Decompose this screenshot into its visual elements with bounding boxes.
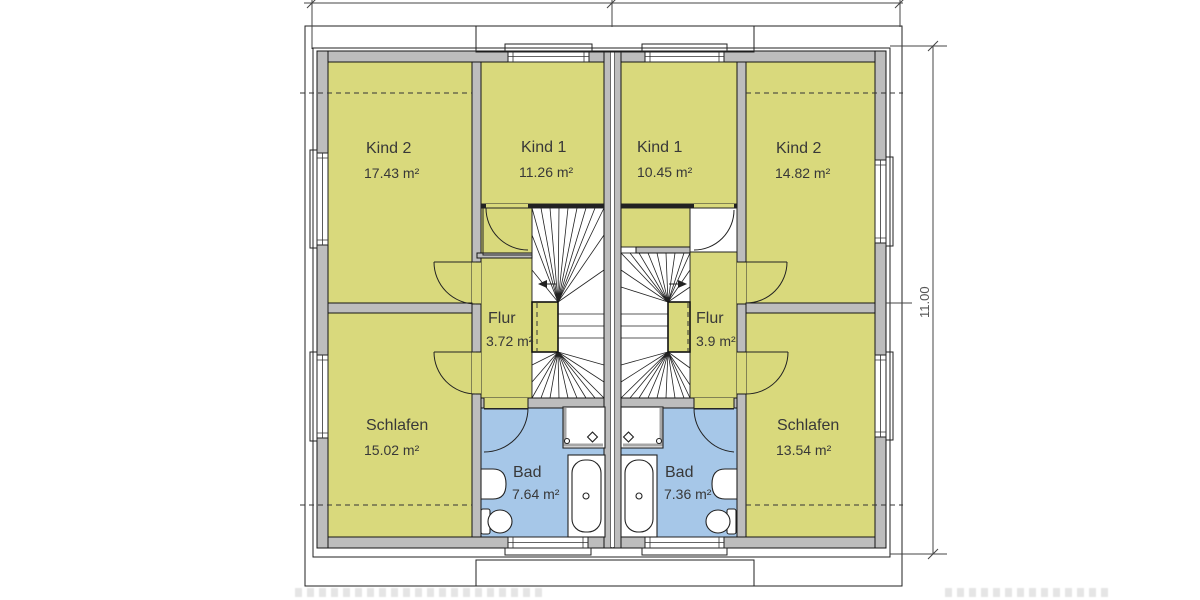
- toilet-icon: [706, 510, 730, 533]
- interior-wall: [481, 398, 484, 408]
- party-wall-gap: [611, 52, 614, 547]
- window-sill: [642, 548, 727, 555]
- room-name: Bad: [513, 464, 541, 481]
- partition-wall: [734, 204, 737, 208]
- room-name: Bad: [665, 464, 693, 481]
- shower-valve-icon: [657, 439, 662, 444]
- room-area: 17.43 m²: [364, 165, 420, 181]
- faint-artifact-right: [945, 588, 1110, 597]
- room-kind1-right: [621, 62, 737, 204]
- stair-right: [621, 253, 690, 398]
- partition-wall: [481, 204, 486, 208]
- sink-icon: [481, 469, 506, 499]
- room-area: 3.72 m²: [486, 333, 534, 349]
- room-kind2-right: [746, 62, 875, 303]
- dimension-top: [304, 0, 905, 49]
- room-name: Kind 1: [637, 139, 682, 156]
- room-name: Schlafen: [366, 417, 428, 434]
- interior-wall: [737, 62, 746, 262]
- floor-plan-page: 11.00 Kind 2 17.43 m² Kind 1 11.26 m² Ki…: [0, 0, 1200, 600]
- exterior-wall-left: [317, 51, 328, 548]
- bathtub-drain-icon: [583, 493, 589, 499]
- bathtub-drain-icon: [636, 493, 642, 499]
- room-area: 3.9 m²: [696, 333, 736, 349]
- room-name: Flur: [696, 310, 724, 327]
- shower-valve-icon: [565, 439, 570, 444]
- room-kind1-left: [481, 62, 604, 204]
- stair-newel-right: [668, 302, 690, 352]
- room-area: 7.36 m²: [664, 486, 712, 502]
- sink-icon: [712, 469, 737, 499]
- dimension-ticks: [307, 0, 905, 10]
- room-name: Kind 1: [521, 139, 566, 156]
- room-area: 15.02 m²: [364, 442, 420, 458]
- door-opening-floor: [737, 352, 746, 394]
- dimension-right: 11.00: [886, 41, 947, 559]
- room-name: Kind 2: [366, 140, 411, 157]
- toilet-icon: [488, 510, 512, 533]
- door-opening-floor: [472, 262, 481, 304]
- room-name: Schlafen: [777, 417, 839, 434]
- interior-wall: [737, 304, 746, 352]
- room-flur-left: [481, 208, 532, 398]
- stair-newel-left: [532, 302, 558, 352]
- window-sill: [505, 548, 591, 555]
- interior-wall: [737, 394, 746, 537]
- partition-wall: [621, 204, 694, 208]
- faint-artifact-left: [295, 588, 545, 597]
- door-opening-floor: [737, 262, 746, 304]
- room-area: 11.26 m²: [519, 164, 574, 180]
- room-kind2-left: [328, 62, 472, 303]
- door-opening-floor: [486, 204, 528, 208]
- door-opening-floor: [694, 204, 734, 208]
- stair-left: [532, 208, 604, 398]
- room-name: Flur: [488, 310, 516, 327]
- gable-notch-bottom: [476, 560, 754, 586]
- interior-wall: [734, 398, 737, 408]
- door-opening-floor: [472, 352, 481, 394]
- exterior-wall-right: [875, 51, 886, 548]
- dimension-value: 11.00: [917, 286, 932, 318]
- room-area: 13.54 m²: [776, 442, 832, 458]
- wall-stub: [636, 247, 690, 253]
- interior-wall: [472, 304, 481, 352]
- room-area: 10.45 m²: [637, 164, 693, 180]
- partition-wall: [528, 204, 604, 208]
- party-wall-right-leaf: [614, 51, 621, 548]
- room-area: 7.64 m²: [512, 486, 560, 502]
- interior-wall: [472, 62, 481, 262]
- room-name: Kind 2: [776, 140, 821, 157]
- room-flur-right-strip: [621, 208, 690, 247]
- door-opening-floor: [694, 398, 734, 408]
- floor-plan-drawing: 11.00 Kind 2 17.43 m² Kind 1 11.26 m² Ki…: [0, 0, 1200, 600]
- interior-wall: [328, 303, 472, 313]
- exterior-wall-bottom: [317, 537, 886, 548]
- interior-wall: [746, 303, 875, 313]
- interior-wall: [472, 394, 481, 537]
- room-area: 14.82 m²: [775, 165, 831, 181]
- door-opening-floor: [484, 398, 528, 408]
- exterior-wall-top: [317, 51, 886, 62]
